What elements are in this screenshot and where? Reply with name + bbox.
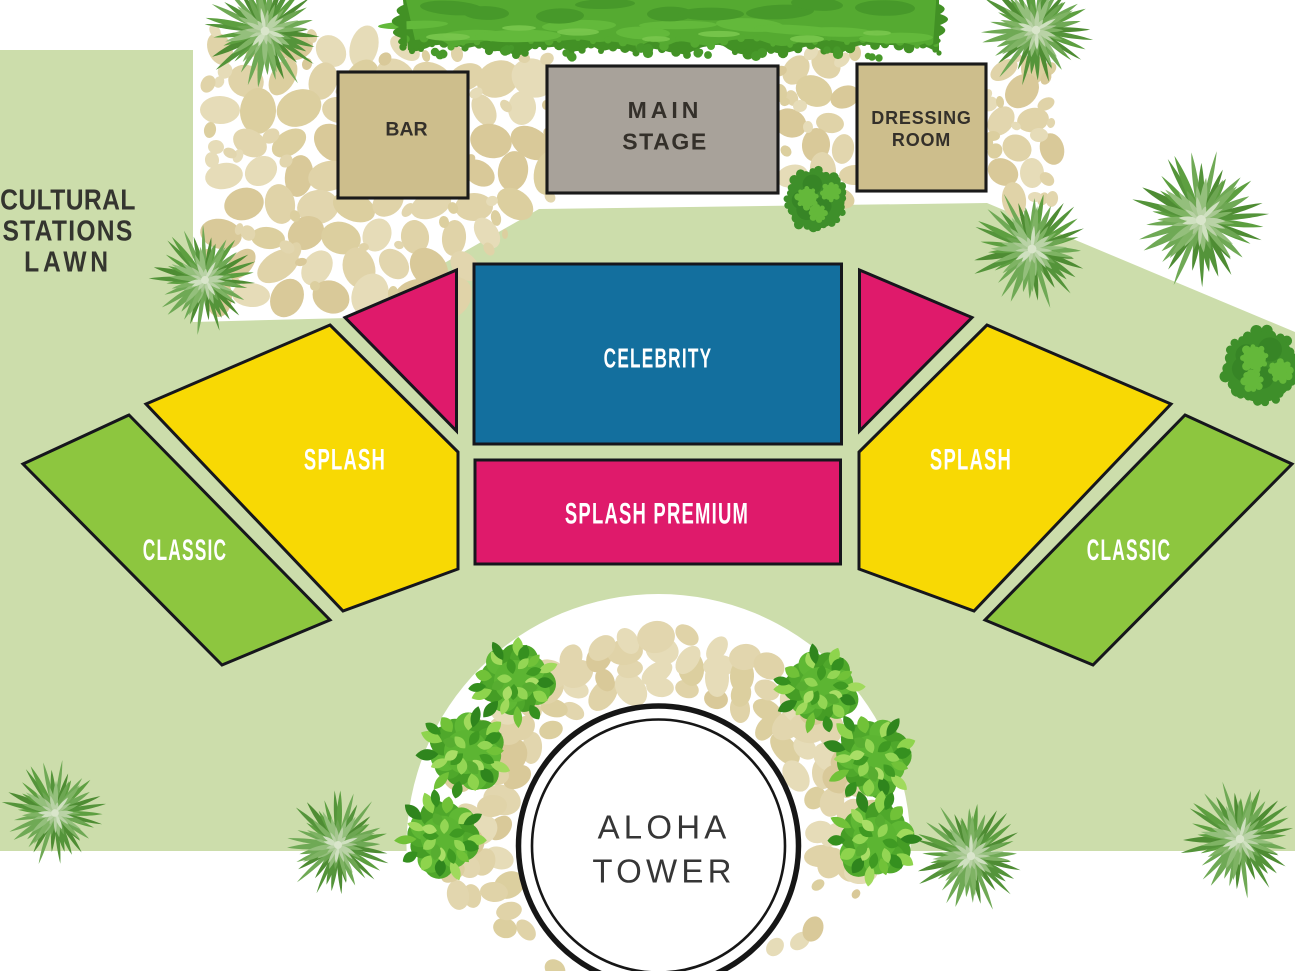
svg-text:CELEBRITY: CELEBRITY [604, 342, 713, 373]
svg-text:CULTURAL: CULTURAL [0, 184, 136, 216]
svg-text:CLASSIC: CLASSIC [143, 534, 227, 567]
svg-text:DRESSING: DRESSING [871, 108, 971, 128]
svg-text:BAR: BAR [385, 119, 427, 141]
svg-text:ROOM: ROOM [892, 130, 951, 150]
svg-text:TOWER: TOWER [592, 853, 735, 890]
svg-text:ALOHA: ALOHA [598, 809, 731, 846]
svg-text:STATIONS: STATIONS [2, 215, 133, 247]
svg-text:SPLASH PREMIUM: SPLASH PREMIUM [565, 497, 749, 531]
svg-text:SPLASH: SPLASH [304, 443, 386, 477]
svg-text:LAWN: LAWN [24, 246, 112, 278]
svg-text:CLASSIC: CLASSIC [1087, 534, 1171, 567]
svg-text:SPLASH: SPLASH [930, 443, 1012, 477]
svg-text:MAIN: MAIN [628, 97, 703, 123]
svg-text:STAGE: STAGE [622, 129, 708, 155]
